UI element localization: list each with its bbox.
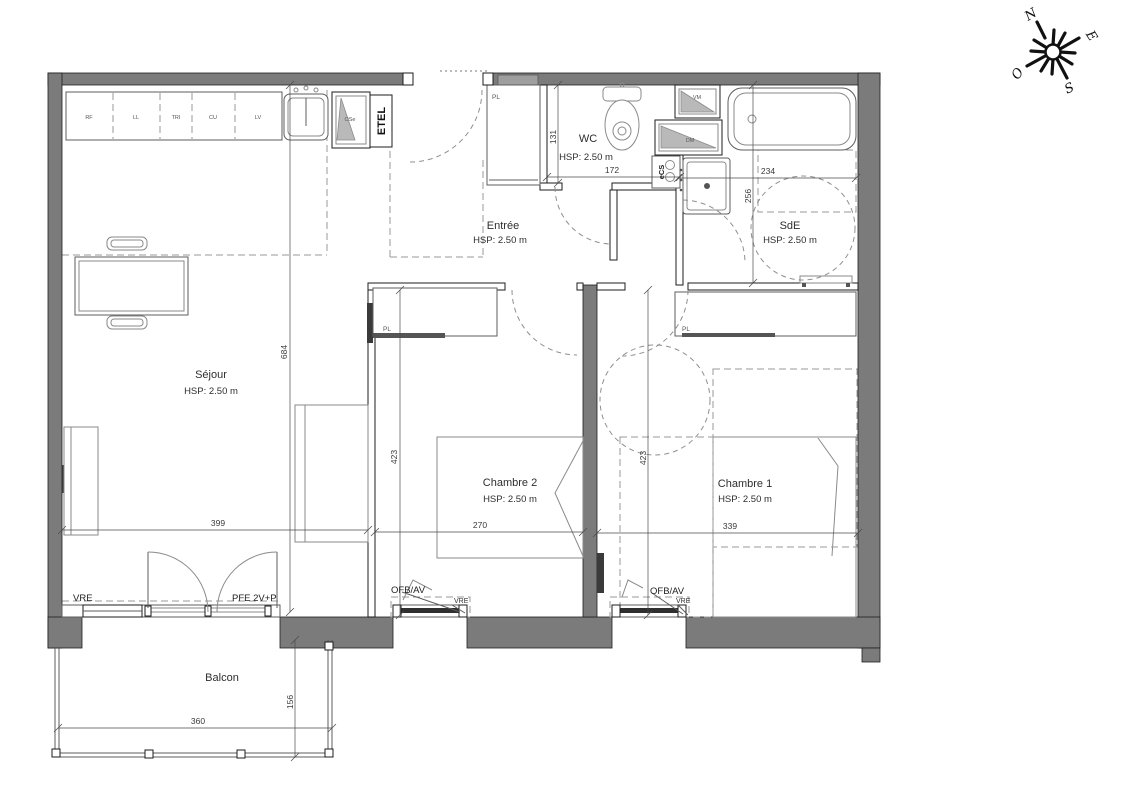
room-label-chambre2: Chambre 2 bbox=[483, 477, 537, 489]
balcony-post bbox=[145, 750, 153, 758]
kitchen-unit-rf: RF bbox=[85, 115, 93, 121]
entry-door-swing bbox=[410, 90, 482, 162]
ofb-label-chambre1: OFB/AV bbox=[650, 586, 685, 597]
turning-circle-sde bbox=[751, 176, 855, 280]
dim-ch2-w: 270 bbox=[473, 520, 487, 530]
room-label-sde: SdE bbox=[780, 220, 801, 232]
washbasin-icon bbox=[680, 158, 730, 214]
lintel bbox=[498, 75, 538, 85]
kitchen-unit-cu: CU bbox=[209, 115, 217, 121]
dim-ch1-h: 423 bbox=[638, 451, 648, 465]
kitchen-unit-tri: TRI bbox=[172, 115, 181, 121]
toilet-icon bbox=[603, 83, 641, 150]
room-label-sejour: Séjour bbox=[195, 369, 227, 381]
balcony-post bbox=[325, 749, 333, 757]
kitchen-sink-icon bbox=[284, 86, 328, 140]
balcony-post bbox=[237, 750, 245, 758]
french-door-swing bbox=[148, 552, 208, 612]
kitchen-duct-label: OSe bbox=[344, 117, 355, 123]
room-label-entree: Entrée bbox=[487, 220, 519, 232]
compass-west: O bbox=[1009, 65, 1028, 83]
room-hsp-sejour: HSP: 2.50 m bbox=[184, 386, 238, 397]
closet-chambre1 bbox=[675, 292, 856, 336]
wc-fixtures bbox=[603, 83, 641, 150]
dim-wc-h: 131 bbox=[548, 130, 558, 144]
sofa-icon bbox=[295, 405, 368, 542]
wc-door-swing bbox=[555, 187, 612, 244]
etel-label: ETEL bbox=[376, 107, 388, 135]
compass-rose: N E S O bbox=[1009, 5, 1100, 97]
shower-zone-dashed bbox=[758, 150, 856, 212]
etel-box: ETEL bbox=[370, 95, 392, 147]
closet-label: PL bbox=[492, 94, 500, 101]
closet-chambre2-front bbox=[373, 333, 445, 338]
chambre2-door-swing bbox=[512, 290, 577, 355]
bedroom-divider-wall bbox=[583, 285, 597, 617]
closet-label: PL bbox=[682, 326, 690, 333]
room-hsp-chambre2: HSP: 2.50 m bbox=[483, 494, 537, 505]
room-hsp-sde: HSP: 2.50 m bbox=[763, 235, 817, 246]
kitchen-duct: OSe bbox=[332, 92, 370, 148]
bathtub-icon bbox=[728, 88, 856, 150]
duct-vm: VM bbox=[675, 85, 720, 118]
dim-wc-w: 172 bbox=[605, 165, 619, 175]
dim-sejour-w: 399 bbox=[211, 518, 225, 528]
balcony-post bbox=[52, 749, 60, 757]
duct-dm: DM bbox=[655, 120, 722, 155]
bedroom-furniture bbox=[437, 369, 857, 617]
closet-chambre2 bbox=[373, 288, 497, 336]
balcony-post bbox=[325, 642, 333, 650]
vre-label-chambre2: VRE bbox=[454, 598, 469, 605]
room-label-balcon: Balcon bbox=[205, 672, 239, 684]
room-hsp-wc: HSP: 2.50 m bbox=[559, 152, 613, 163]
dimensions: 684 399 423 270 423 339 131 172 234 bbox=[54, 81, 862, 761]
floor-plan-page: PL PL PL RF LL TRI CU LV OSe bbox=[0, 0, 1121, 800]
vre-label-chambre1: VRE bbox=[676, 598, 691, 605]
dining-table-icon bbox=[75, 237, 188, 329]
ofb-label-chambre2: OFB/AV bbox=[391, 585, 426, 596]
dim-ch1-w: 339 bbox=[723, 521, 737, 531]
turning-circle-chambre1 bbox=[600, 345, 710, 455]
room-label-chambre1: Chambre 1 bbox=[718, 478, 772, 490]
compass-east: E bbox=[1082, 27, 1101, 44]
wall-tick bbox=[367, 303, 373, 343]
pfe-label: PFE 2V+P bbox=[232, 593, 277, 604]
dim-balcon-w: 360 bbox=[191, 716, 205, 726]
kitchen-unit-ll: LL bbox=[133, 115, 139, 121]
dim-sde-h: 256 bbox=[743, 189, 753, 203]
closet-label: PL bbox=[383, 326, 391, 333]
room-hsp-entree: HSP: 2.50 m bbox=[473, 235, 527, 246]
sejour-sill bbox=[62, 552, 280, 617]
room-hsp-chambre1: HSP: 2.50 m bbox=[718, 494, 772, 505]
water-heater-icon: eCS bbox=[652, 156, 680, 188]
dim-ch2-h: 423 bbox=[389, 450, 399, 464]
kitchen: RF LL TRI CU LV OSe ETEL bbox=[66, 86, 392, 148]
room-label-wc: WC bbox=[579, 133, 597, 145]
compass-south: S bbox=[1062, 80, 1076, 97]
kitchen-unit-lv: LV bbox=[255, 115, 262, 121]
dim-balcon-d: 156 bbox=[285, 695, 295, 709]
duct-vm-label: VM bbox=[693, 95, 702, 101]
dim-sejour-h: 684 bbox=[279, 345, 289, 359]
duct-dm-label: DM bbox=[686, 138, 695, 144]
sideboard-icon bbox=[64, 427, 98, 535]
dim-sde-w: 234 bbox=[761, 166, 775, 176]
closet-chambre1-front bbox=[682, 333, 775, 337]
wall-tick bbox=[597, 553, 604, 593]
vre-label-sejour: VRE bbox=[73, 593, 93, 604]
floor-plan-drawing: PL PL PL RF LL TRI CU LV OSe bbox=[0, 0, 1121, 800]
